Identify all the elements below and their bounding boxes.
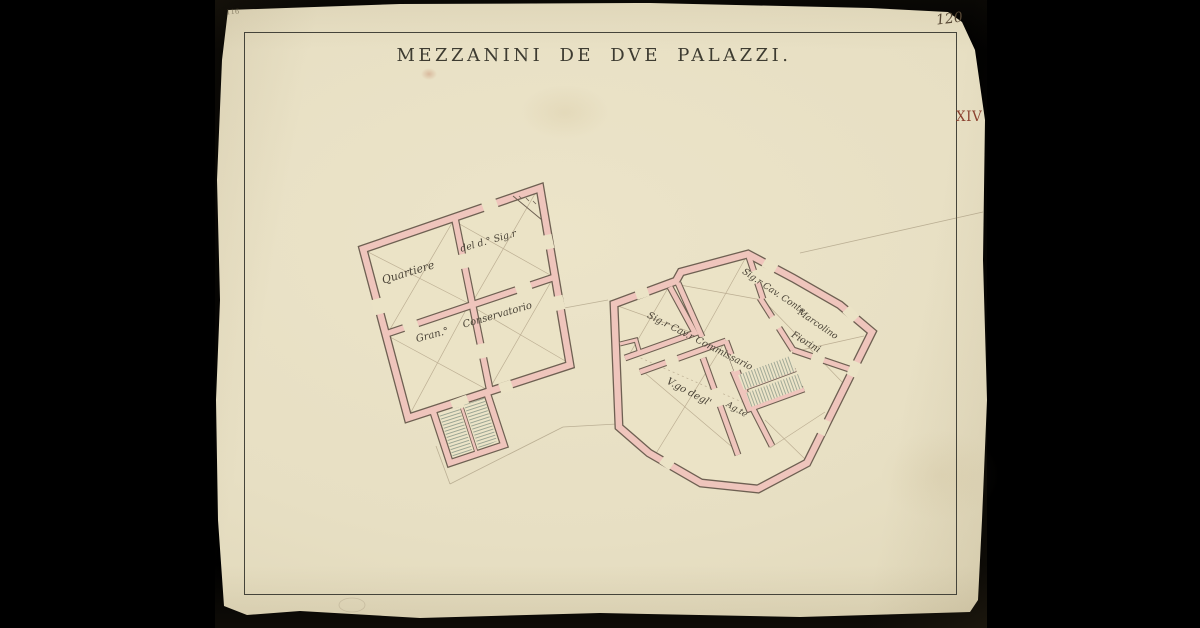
pencil-circle — [339, 598, 365, 612]
site-line — [563, 424, 617, 427]
right-plan: Sig.r Cav.r Commissario Sig.r Cav. Conte… — [614, 254, 872, 489]
left-plan: Quartiere del d.° Sig.r Gran.° Conservat… — [363, 188, 570, 463]
plans-svg: Quartiere del d.° Sig.r Gran.° Conservat… — [0, 0, 1200, 628]
scan-background: MEZZANINI DE DVE PALAZZI. 120 XIV 116 — [0, 0, 1200, 628]
site-line — [800, 212, 983, 253]
